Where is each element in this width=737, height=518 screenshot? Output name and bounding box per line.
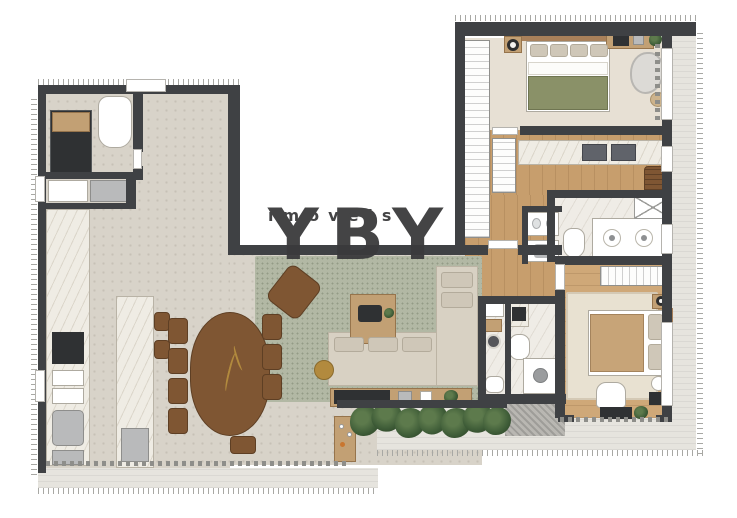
toilet-servicebath [98, 96, 132, 148]
watermark-tagline: imóveis [268, 206, 400, 225]
cooktop [52, 332, 84, 364]
laundry-appliance [90, 180, 128, 202]
terrace-left-band [38, 468, 378, 488]
curtain-terrace [46, 461, 348, 466]
sofa-pillow [368, 337, 398, 352]
dining-chair [262, 314, 282, 340]
wall-wc-left [522, 206, 528, 264]
bed-sheet-fold [528, 62, 608, 75]
wall-bath-left [547, 190, 555, 262]
wall-servicebath-right-a [133, 92, 143, 152]
wall-laundry-bottom [45, 203, 133, 209]
wall-bathcluster-top [478, 296, 565, 304]
wall-left [38, 85, 46, 473]
bar-cart-bottle [339, 424, 344, 429]
bed-pillow [550, 44, 568, 57]
wall-bathcluster-mid [505, 300, 511, 396]
closet-drawer-unit [582, 144, 607, 161]
bedroom2-wardrobe [600, 266, 670, 286]
dining-chair [262, 374, 282, 400]
dining-chair [168, 408, 188, 434]
wall-laundry-right [126, 172, 136, 209]
curtain-bedroom2 [560, 417, 670, 422]
bed-pillow [570, 44, 588, 57]
plant-icon [483, 407, 511, 435]
door-servicebath [133, 149, 142, 169]
door-master [492, 127, 518, 135]
window-left-a [35, 176, 45, 202]
desk-chair [596, 382, 626, 408]
kitchen-sink-basin [52, 410, 84, 446]
wall-wc-top [522, 206, 562, 212]
window-left-b [35, 370, 45, 402]
window-master [661, 48, 673, 120]
wall-top-right [455, 22, 696, 36]
closet-drawer-unit [611, 144, 636, 161]
bath2-sink [512, 307, 526, 321]
bath2-toilet [509, 334, 530, 360]
bed-blanket [528, 76, 608, 110]
wall-closet-bath [555, 190, 672, 198]
lamp-icon [507, 39, 519, 51]
wall-master-closet [520, 126, 672, 135]
sofa-pillow [334, 337, 364, 352]
hatch-edge-left [31, 95, 37, 475]
shower-bench [52, 112, 90, 132]
wall-bath-bedroom2 [555, 256, 672, 265]
bath2-shower-head [533, 368, 548, 383]
dining-chair [168, 378, 188, 404]
entry-door [126, 79, 166, 92]
watermark: YBY imóveis [268, 202, 468, 312]
vanity-sink [635, 229, 653, 247]
wall-bathcluster-bottom [478, 394, 566, 404]
bar-cart-bottle [340, 442, 345, 447]
hatch-edge-bottom-right [377, 450, 703, 456]
lavabo-sink [486, 334, 501, 349]
hatch-edge-right [697, 30, 703, 454]
door-bedroom2 [555, 264, 565, 290]
hatch-edge-top-right [455, 15, 696, 21]
vanity-sink [603, 229, 621, 247]
lavabo-cabinet [484, 319, 502, 332]
dining-chair [230, 436, 256, 454]
window-master-bath [661, 224, 673, 254]
balcony-right [672, 36, 696, 450]
planter-row [350, 402, 510, 442]
wall-bathcluster-left [478, 296, 486, 400]
dining-chair [262, 344, 282, 370]
bed-pillow [530, 44, 548, 57]
kitchen-sink-a [52, 370, 84, 386]
hatch-edge-bottom-left [38, 488, 378, 494]
dining-chair [168, 318, 188, 344]
floor-plan: YBY imóveis [0, 0, 737, 518]
window-bedroom2 [661, 322, 673, 406]
sofa-pillow [402, 337, 432, 352]
wall-servicebath-bottom [45, 172, 135, 179]
wall-mid-vertical [228, 85, 240, 255]
balcony-bedroom2 [558, 418, 696, 450]
lavabo-toilet [485, 376, 504, 393]
door-hall-living [488, 240, 518, 249]
island-cooktop [121, 428, 149, 462]
laundry-counter [48, 180, 88, 202]
lavabo-counter [483, 302, 504, 317]
dining-chair [168, 348, 188, 374]
closet-wardrobe [492, 138, 516, 193]
bed-pillow [590, 44, 608, 57]
curtain-master [655, 44, 660, 120]
window-closet [661, 146, 673, 172]
master-toilet [563, 228, 585, 258]
wc-sink-basin [532, 218, 541, 229]
bed2-blanket [590, 314, 644, 372]
side-table [314, 360, 334, 380]
kitchen-sink-b [52, 388, 84, 404]
